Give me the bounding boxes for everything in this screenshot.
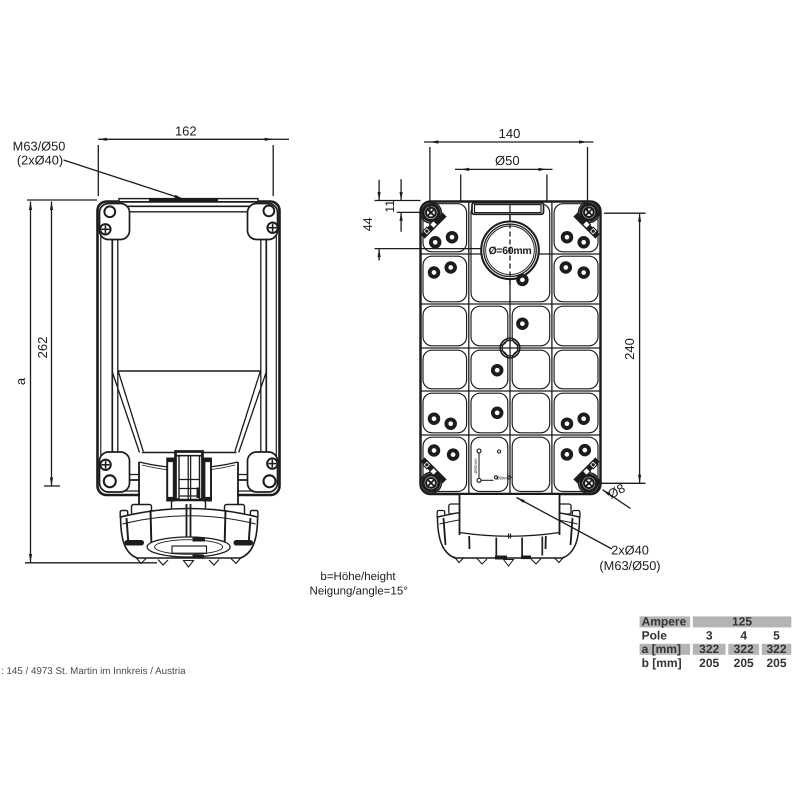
svg-text:3: 3 <box>706 628 713 642</box>
svg-text:205: 205 <box>766 656 786 670</box>
svg-text:322: 322 <box>699 642 719 656</box>
svg-text:a [mm]: a [mm] <box>642 642 681 656</box>
svg-text:162: 162 <box>175 124 197 139</box>
svg-text:Neigung/angle=15°: Neigung/angle=15° <box>310 586 408 598</box>
svg-text:Ø=60mm: Ø=60mm <box>489 245 532 257</box>
svg-text:Ø8mm: Ø8mm <box>496 476 509 481</box>
svg-text:(M63/Ø50): (M63/Ø50) <box>599 558 660 573</box>
svg-text:2xØ40: 2xØ40 <box>611 543 649 558</box>
svg-text:44: 44 <box>361 217 375 231</box>
svg-text:205: 205 <box>734 656 754 670</box>
svg-text:11: 11 <box>383 200 397 213</box>
svg-text:322: 322 <box>766 642 786 656</box>
svg-text:b=Höhe/height: b=Höhe/height <box>320 571 396 583</box>
svg-text:(2xØ40): (2xØ40) <box>17 153 63 168</box>
svg-text:322: 322 <box>734 642 754 656</box>
svg-text:4: 4 <box>740 628 747 642</box>
svg-text:: 145 / 4973 St. Martin im Inn: : 145 / 4973 St. Martin im Innkreis / Au… <box>1 666 186 677</box>
svg-text:Ø40mm: Ø40mm <box>473 458 478 473</box>
svg-text:Pole: Pole <box>642 628 668 642</box>
svg-text:140: 140 <box>499 126 521 141</box>
svg-text:a: a <box>13 377 28 385</box>
svg-text:125: 125 <box>732 615 752 629</box>
svg-text:Ø50: Ø50 <box>495 153 520 168</box>
svg-text:Ampere: Ampere <box>642 615 687 629</box>
svg-text:b [mm]: b [mm] <box>642 656 682 670</box>
svg-text:M63/Ø50: M63/Ø50 <box>13 139 66 154</box>
svg-text:240: 240 <box>622 338 637 360</box>
svg-text:5: 5 <box>773 628 780 642</box>
svg-text:262: 262 <box>35 337 50 359</box>
svg-text:205: 205 <box>699 656 719 670</box>
